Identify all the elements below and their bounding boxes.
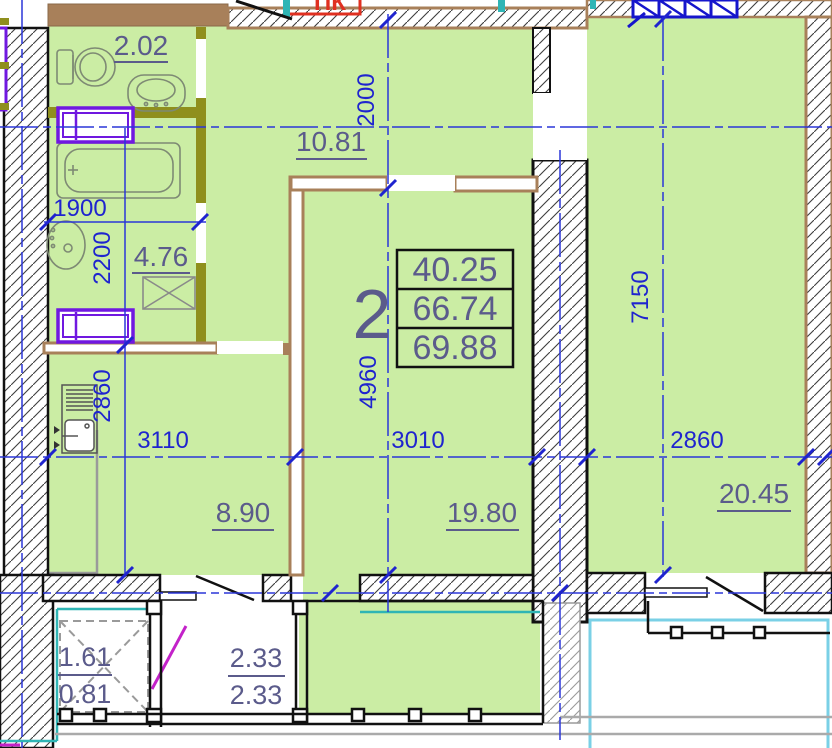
dim-7150: 7150: [627, 270, 654, 323]
wall-left-exterior: [4, 28, 48, 622]
door-jamb-2: [196, 98, 206, 203]
wall-center-upper: [533, 28, 550, 93]
loggia-area: [299, 601, 540, 715]
dim-4960: 4960: [355, 355, 382, 408]
kitchen-balcony-door-leaf: [196, 576, 254, 600]
partition-hall-living-right: [455, 177, 537, 191]
balcony-divider-1: [147, 601, 161, 727]
magenta-diagonal: [152, 626, 186, 689]
label-area-living: 19.80: [447, 497, 517, 528]
apartment-area-value: 66.74: [412, 290, 497, 328]
dim-2860-left: 2860: [89, 369, 116, 422]
floor-plan: 2.02 4.76 10.81 8.90 19.80 20.45 1.61 0.…: [0, 0, 832, 748]
dim-3010: 3010: [391, 427, 444, 454]
bedroom-balcony-door-leaf: [706, 577, 763, 611]
wall-right-exterior: [806, 17, 832, 573]
dim-1900: 1900: [53, 195, 106, 222]
door-jamb-1: [196, 27, 206, 39]
label-balcony-b-bottom: 2.33: [230, 680, 283, 710]
door-jamb-3: [196, 263, 206, 345]
label-balcony-b-top: 2.33: [230, 643, 283, 673]
door-opening-wc: [196, 39, 206, 98]
dim-3110: 3110: [137, 427, 189, 454]
door-opening-kitchen: [217, 341, 283, 354]
radiator-bathroom: [58, 108, 133, 142]
wall-bottom-kitchen-right: [263, 575, 291, 601]
door-opening-living: [387, 175, 455, 191]
floor-plan-svg: 2.02 4.76 10.81 8.90 19.80 20.45 1.61 0.…: [0, 0, 832, 748]
label-balcony-a-top: 1.61: [59, 642, 112, 672]
loggia-door-opening: [303, 575, 360, 603]
door-opening-bath: [196, 203, 206, 263]
dim-2200: 2200: [89, 231, 116, 284]
open-balcony-outline: [590, 620, 828, 748]
radiator-bath2: [58, 310, 133, 342]
rooms-count: 2: [353, 275, 392, 353]
living-area-value: 40.25: [412, 251, 497, 289]
label-area-hall: 10.81: [296, 126, 366, 157]
label-area-kitchen: 8.90: [216, 497, 271, 528]
teal-mark-2: [498, 0, 505, 12]
wall-balcony-pillar: [543, 603, 580, 723]
teal-mark-1: [283, 0, 290, 17]
label-area-bath: 4.76: [134, 241, 189, 272]
total-area-value: 69.88: [412, 329, 497, 367]
partition-bath-bottom: [44, 343, 217, 353]
teal-mark-3: [590, 0, 596, 9]
label-duct: ПК: [314, 0, 346, 16]
wall-top-bathroom: [48, 4, 228, 26]
dim-2000: 2000: [353, 73, 380, 126]
partition-hall-living-left: [291, 177, 387, 190]
label-area-wc: 2.02: [114, 30, 169, 61]
wall-bottom-kitchen-left: [43, 575, 160, 601]
label-area-bedroom: 20.45: [719, 478, 789, 509]
dim-2860-right: 2860: [670, 427, 723, 454]
wall-top-corridor: [228, 8, 587, 28]
label-balcony-a-bottom: 0.81: [59, 679, 112, 709]
partition-kitchen-living: [290, 177, 303, 575]
